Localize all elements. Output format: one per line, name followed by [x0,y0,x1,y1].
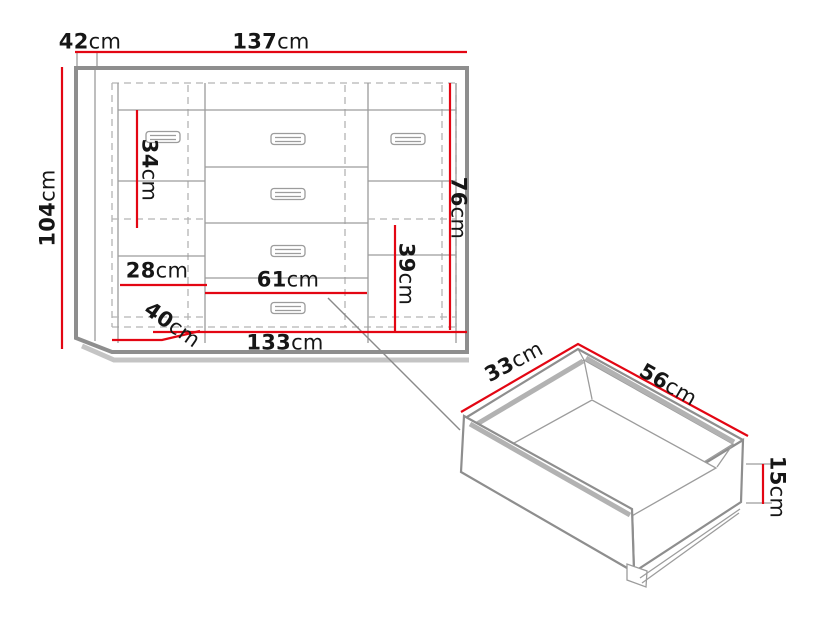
drawer-handle [271,134,305,145]
dim-value: 39 [395,243,419,273]
dim-cabinet-base-width: 133cm [246,333,323,354]
dim-cabinet-left-inner-width: 28cm [126,261,188,282]
dim-unit: cm [395,273,419,306]
dim-value: 133 [246,331,291,355]
drawer-handle [271,189,305,200]
dim-unit: cm [89,30,122,54]
dim-cabinet-total-width: 137cm [232,32,309,53]
dim-value: 61 [257,268,287,292]
dim-drawer-height: 15cm [767,456,788,518]
drawer-handle [271,246,305,257]
diagram-linework [0,0,823,619]
dim-cabinet-left-inner-height: 34cm [139,139,160,201]
drawer-handle [391,134,425,145]
dim-value: 137 [232,30,277,54]
cabinet-drawing [76,52,469,360]
dim-cabinet-right-inner-height: 76cm [448,177,469,239]
dim-value: 28 [126,259,156,283]
dim-value: 104 [36,202,60,247]
dim-cabinet-total-height: 104cm [38,169,59,246]
diagram-canvas: 42cm 137cm 104cm 34cm 28cm 61cm 39cm 76c… [0,0,823,619]
dim-cabinet-top-depth: 42cm [59,32,121,53]
dim-unit: cm [277,30,310,54]
dim-unit: cm [36,169,60,202]
dim-unit: cm [138,169,162,202]
dim-unit: cm [287,268,320,292]
dim-cabinet-right-inner-lower-height: 39cm [396,243,417,305]
dim-value: 42 [59,30,89,54]
dim-unit: cm [291,331,324,355]
drawer-handle [271,303,305,314]
dim-value: 34 [138,139,162,169]
dim-unit: cm [766,486,790,519]
dim-unit: cm [447,207,471,240]
dim-unit: cm [156,259,189,283]
dim-cabinet-center-inner-width: 61cm [257,270,319,291]
dim-value: 15 [766,456,790,486]
dim-value: 76 [447,177,471,207]
